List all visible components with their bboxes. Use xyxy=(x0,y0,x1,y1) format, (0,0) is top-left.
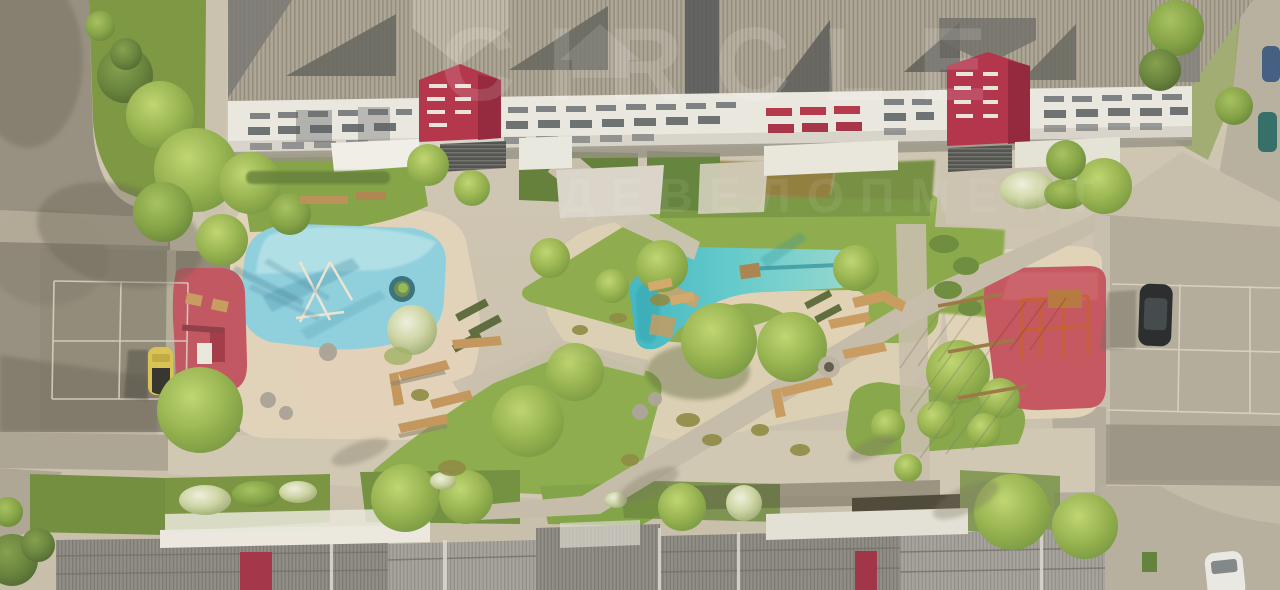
svg-text:ДЕВЕЛОПМЕНТ: ДЕВЕЛОПМЕНТ xyxy=(560,170,1110,223)
svg-text:CIRCLE: CIRCLE xyxy=(440,7,1019,123)
